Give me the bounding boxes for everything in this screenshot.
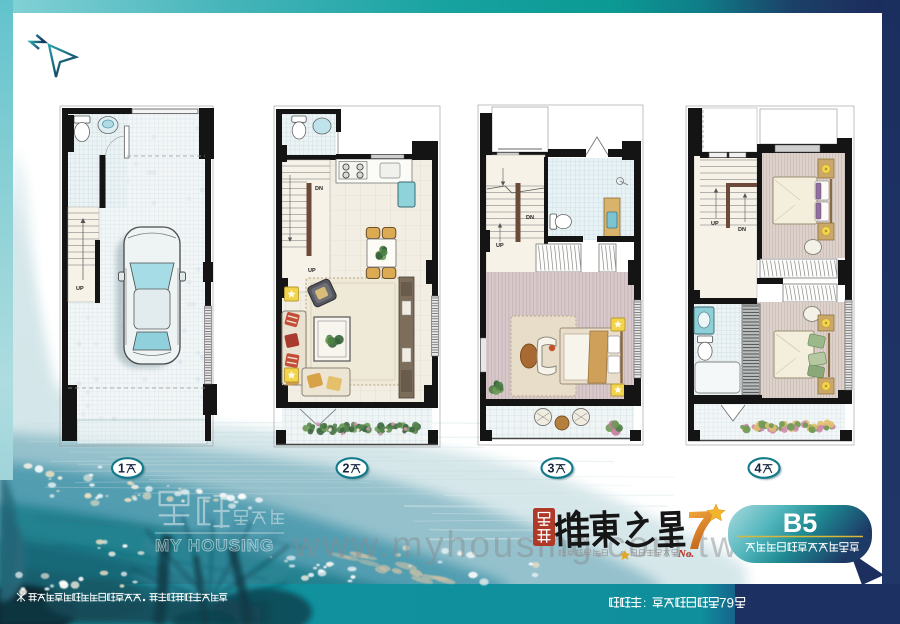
svg-text:UP: UP bbox=[76, 286, 84, 292]
svg-text:B5: B5 bbox=[783, 508, 818, 538]
svg-text:UP: UP bbox=[711, 221, 719, 227]
svg-text:MY HOUSING: MY HOUSING bbox=[155, 536, 274, 555]
svg-text:DN: DN bbox=[738, 227, 746, 233]
svg-text:79: 79 bbox=[719, 596, 734, 611]
svg-text:4: 4 bbox=[755, 462, 762, 476]
svg-text:UP: UP bbox=[308, 268, 316, 274]
svg-text:UP: UP bbox=[496, 243, 504, 249]
svg-text:1: 1 bbox=[118, 462, 125, 476]
svg-text:3: 3 bbox=[548, 462, 555, 476]
svg-text:2: 2 bbox=[343, 462, 350, 476]
svg-text::: : bbox=[643, 596, 646, 610]
svg-text:DN: DN bbox=[315, 186, 323, 192]
svg-text:No.: No. bbox=[677, 548, 694, 560]
svg-text:DN: DN bbox=[526, 215, 534, 221]
